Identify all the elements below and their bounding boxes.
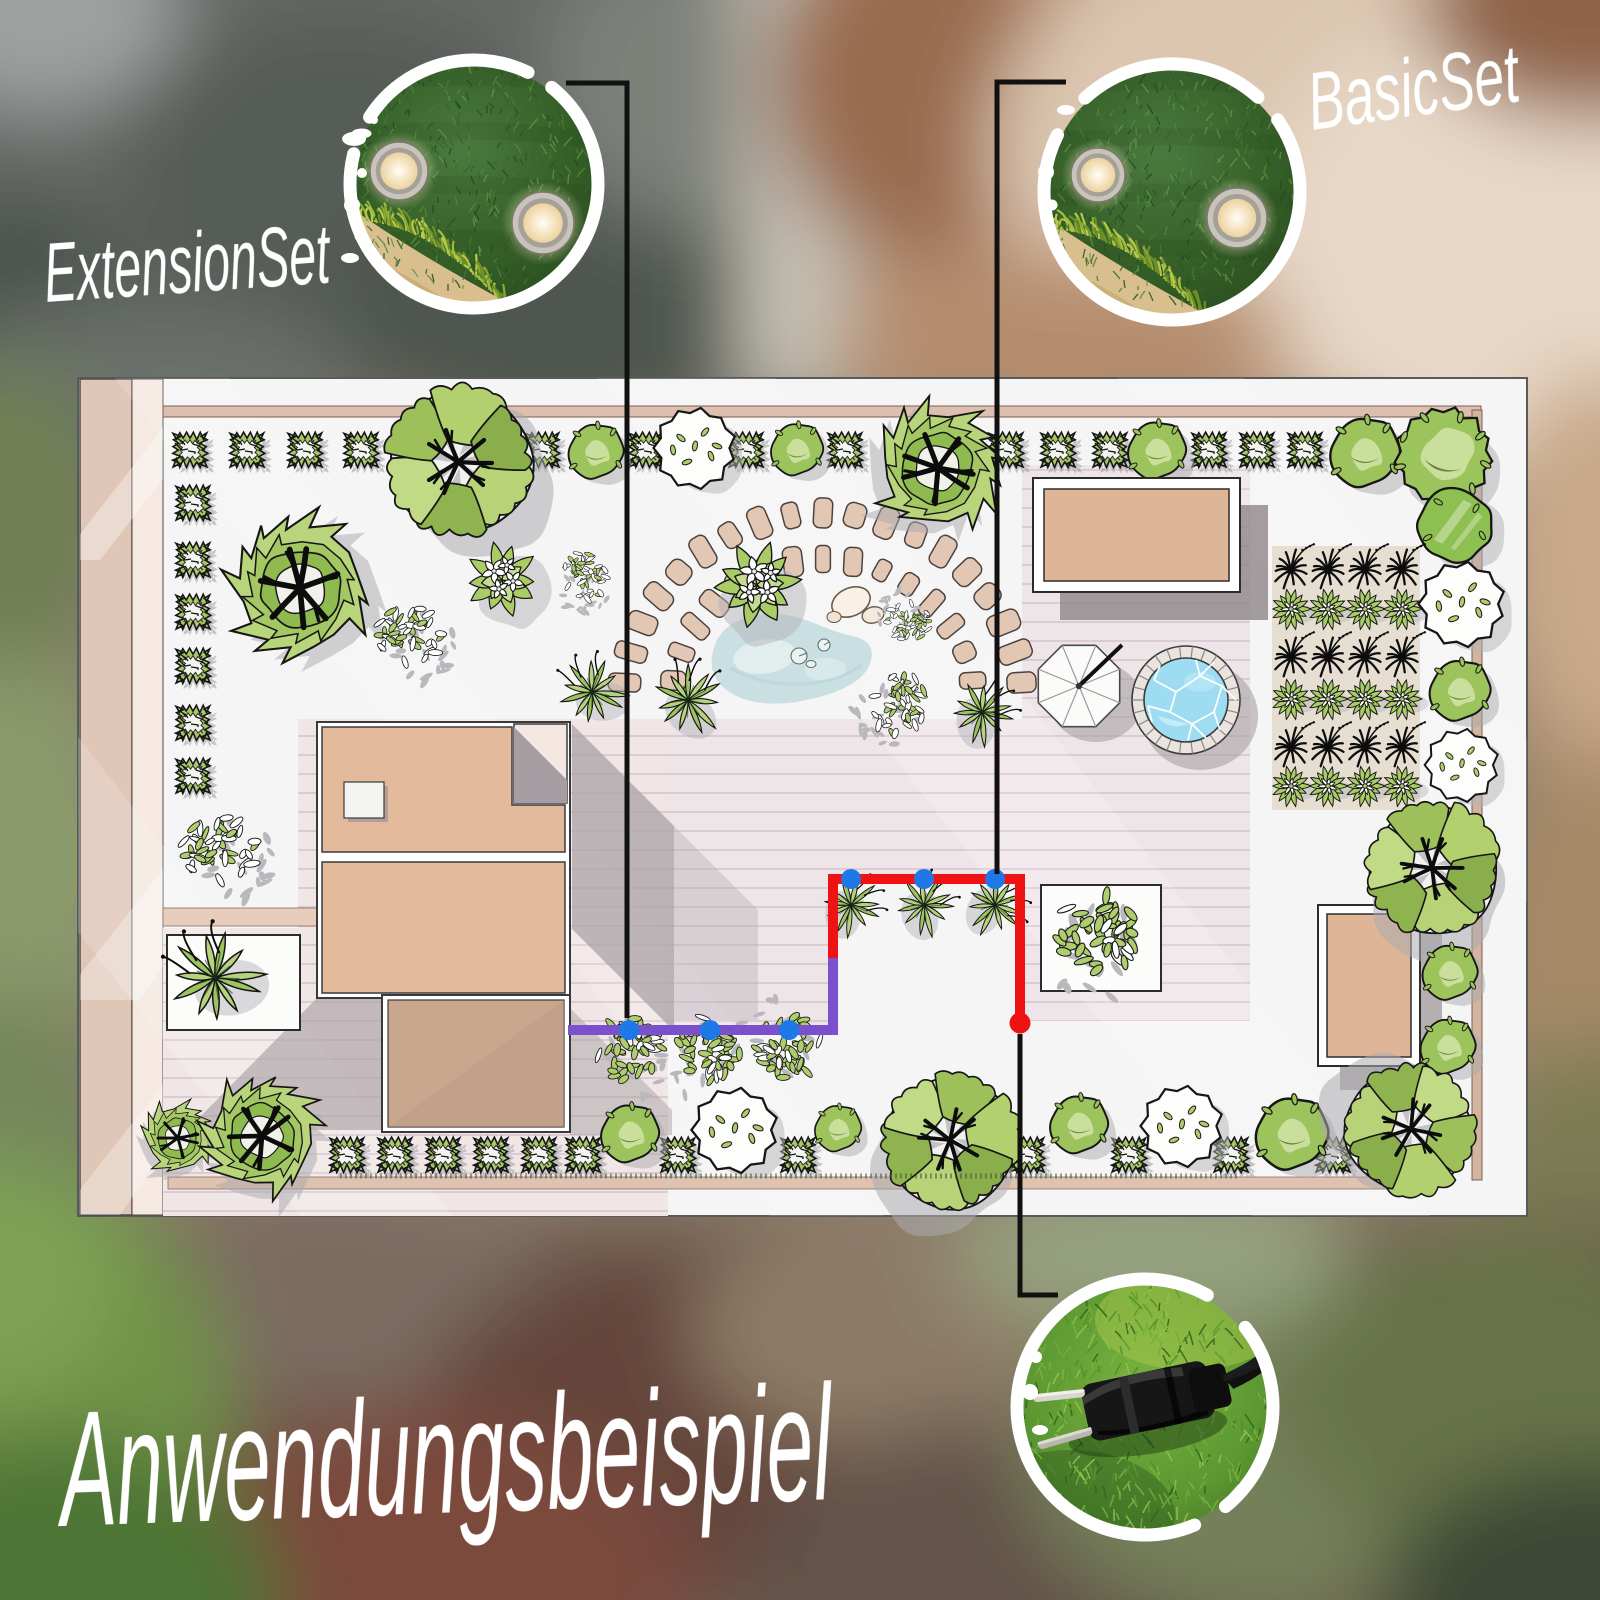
svg-text:ExtensionSet: ExtensionSet (41, 206, 335, 320)
svg-text:Anwendungsbeispiel: Anwendungsbeispiel (52, 1351, 837, 1561)
